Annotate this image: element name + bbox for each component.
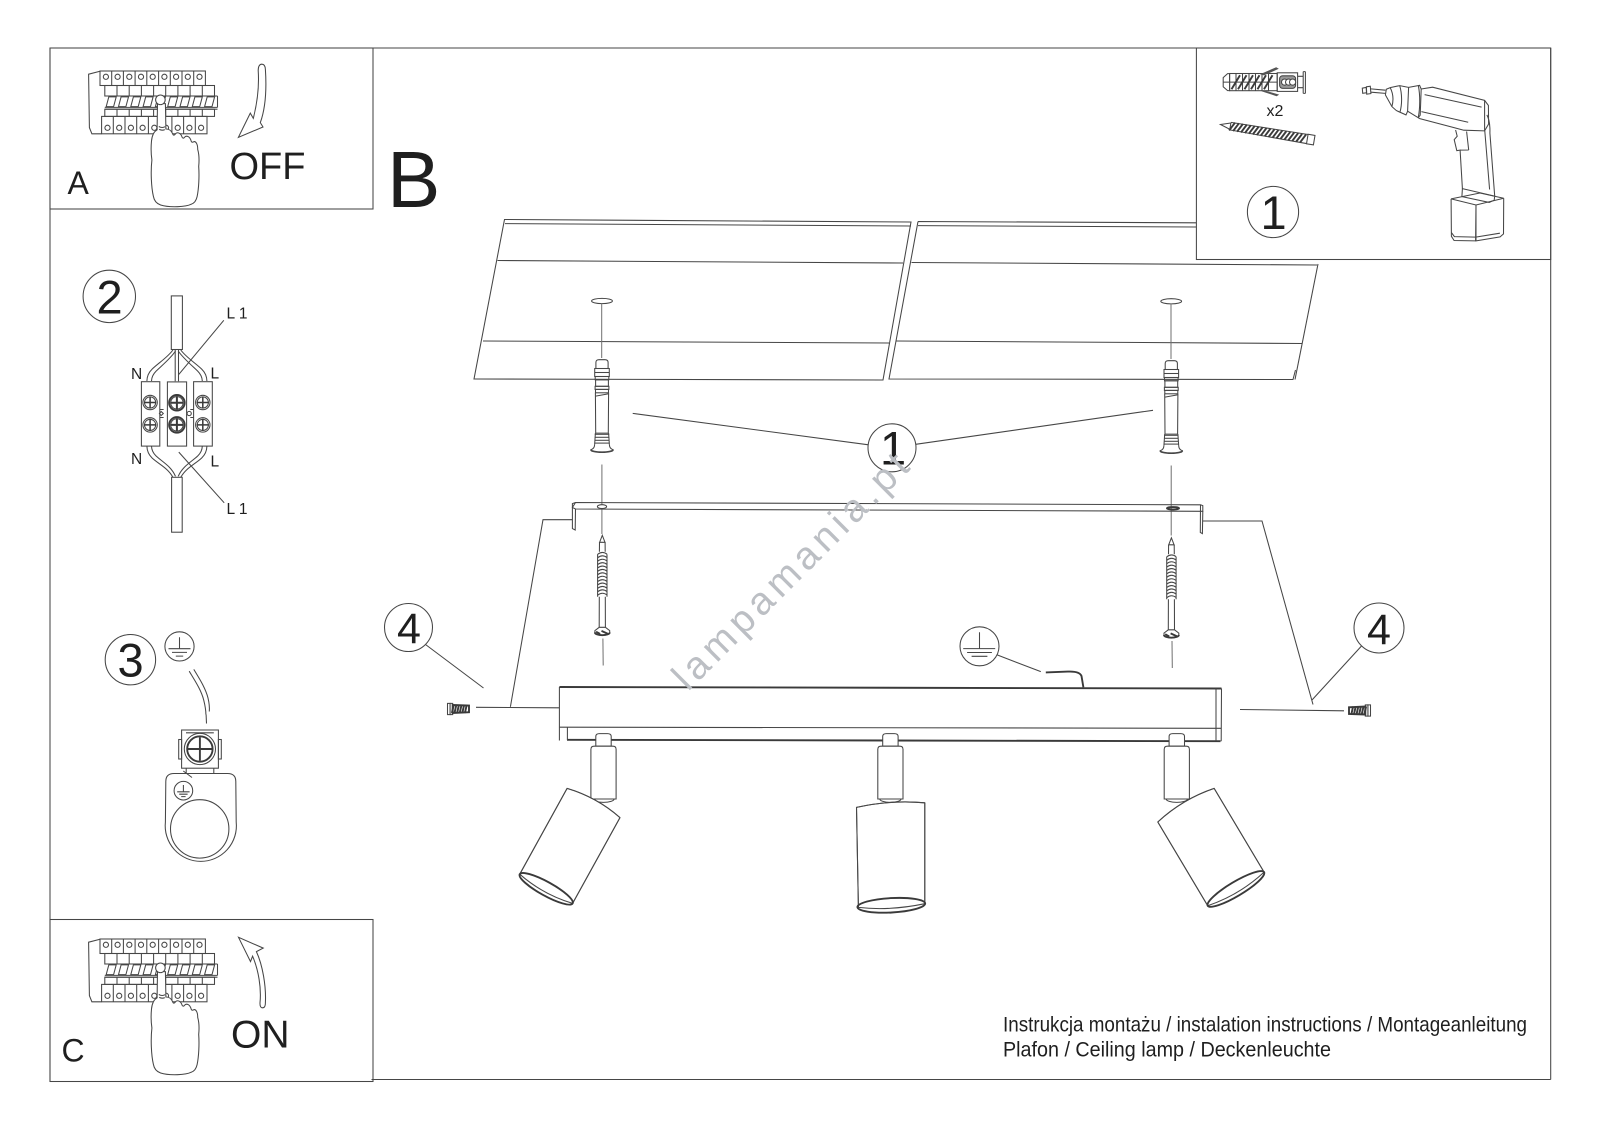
- svg-text:1: 1: [1261, 186, 1287, 239]
- svg-text:3: 3: [118, 634, 144, 687]
- svg-text:Plafon / Ceiling lamp / Decken: Plafon / Ceiling lamp / Deckenleuchte: [1003, 1039, 1331, 1062]
- svg-text:4: 4: [1367, 606, 1391, 654]
- svg-text:L: L: [211, 365, 220, 382]
- svg-text:N: N: [131, 451, 142, 468]
- svg-text:x2: x2: [1267, 103, 1284, 120]
- svg-text:N: N: [131, 366, 142, 383]
- svg-text:L: L: [211, 453, 220, 470]
- svg-text:4: 4: [397, 605, 421, 653]
- svg-text:2: 2: [97, 271, 123, 324]
- svg-text:Instrukcja montażu / instalati: Instrukcja montażu / instalation instruc…: [1003, 1014, 1527, 1037]
- svg-text:OFF: OFF: [230, 146, 306, 188]
- svg-text:ON: ON: [231, 1013, 290, 1056]
- svg-text:L 1: L 1: [227, 306, 248, 323]
- svg-text:L 1: L 1: [227, 501, 248, 518]
- svg-text:lampamania.pt: lampamania.pt: [664, 441, 921, 698]
- svg-text:A: A: [68, 165, 90, 201]
- svg-text:B: B: [387, 135, 440, 224]
- svg-text:C: C: [62, 1033, 85, 1069]
